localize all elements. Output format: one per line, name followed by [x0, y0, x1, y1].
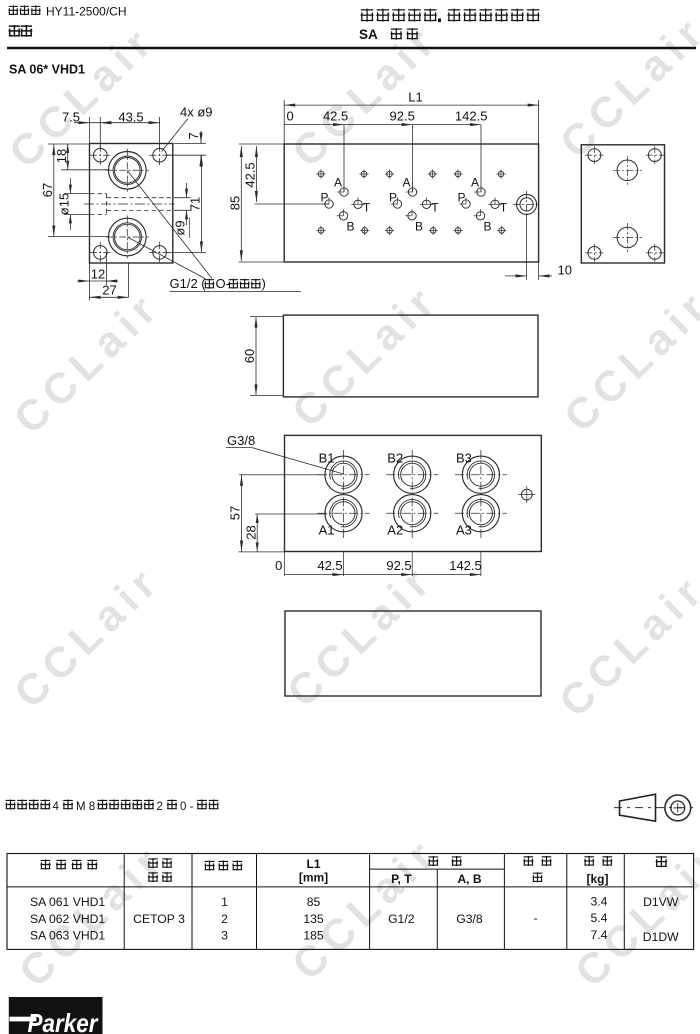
svg-text:Parker: Parker [28, 1008, 100, 1034]
svg-text:T: T [431, 200, 439, 214]
svg-text:85: 85 [307, 895, 321, 909]
svg-text:ø9: ø9 [173, 220, 188, 235]
svg-text:A2: A2 [387, 523, 403, 538]
svg-text:T: T [363, 200, 371, 214]
svg-text:5.4: 5.4 [591, 911, 608, 925]
svg-text:SA 06* VHD1: SA 06* VHD1 [9, 63, 85, 77]
svg-text:42.5: 42.5 [243, 162, 258, 187]
svg-text:SA 061 VHD1: SA 061 VHD1 [30, 895, 105, 909]
svg-text:92.5: 92.5 [386, 558, 411, 573]
svg-text:42.5: 42.5 [317, 558, 342, 573]
svg-text:0: 0 [275, 558, 282, 573]
svg-text:G1/2: G1/2 [388, 912, 415, 926]
svg-text:27: 27 [102, 283, 116, 298]
svg-text:SA: SA [359, 27, 378, 42]
svg-text:12: 12 [91, 267, 105, 282]
svg-text:A: A [334, 176, 342, 190]
svg-text:3.4: 3.4 [591, 895, 608, 909]
svg-text:135: 135 [303, 912, 324, 926]
svg-text:10: 10 [558, 263, 572, 278]
svg-text:SA 063 VHD1: SA 063 VHD1 [30, 929, 105, 943]
svg-text:[mm]: [mm] [299, 871, 328, 885]
svg-text:L1: L1 [408, 90, 422, 105]
svg-text:B: B [346, 220, 354, 234]
svg-text:28: 28 [243, 525, 258, 539]
svg-text:G1/2 (: G1/2 ( [170, 276, 207, 291]
svg-text:CETOP 3: CETOP 3 [133, 912, 185, 926]
svg-text:7.4: 7.4 [591, 928, 608, 942]
svg-text:B1: B1 [319, 450, 335, 465]
svg-text:B: B [483, 220, 491, 234]
svg-text:A3: A3 [456, 523, 472, 538]
svg-text:T: T [500, 200, 508, 214]
svg-text:0: 0 [287, 109, 294, 124]
svg-text:57: 57 [228, 506, 243, 520]
svg-text:B3: B3 [456, 450, 472, 465]
svg-text:2: 2 [221, 912, 228, 926]
svg-text:67: 67 [40, 183, 55, 197]
svg-text:ø15: ø15 [57, 193, 72, 215]
svg-text:2: 2 [157, 801, 163, 813]
svg-text:1: 1 [221, 895, 228, 909]
svg-text:P: P [389, 191, 397, 205]
svg-text:G3/8: G3/8 [456, 912, 483, 926]
svg-text:M 8: M 8 [76, 801, 95, 813]
svg-text:A: A [471, 176, 479, 190]
svg-text:): ) [262, 276, 266, 291]
svg-text:4x ø9: 4x ø9 [180, 104, 213, 119]
svg-text:B2: B2 [387, 450, 403, 465]
svg-text:43.5: 43.5 [118, 110, 143, 125]
svg-text:142.5: 142.5 [449, 558, 482, 573]
svg-text:142.5: 142.5 [455, 109, 488, 124]
svg-text:7.5: 7.5 [62, 110, 80, 125]
svg-text:P, T: P, T [391, 872, 412, 886]
svg-text:O-: O- [216, 276, 230, 291]
svg-text:0 -: 0 - [180, 801, 194, 813]
svg-text:85: 85 [228, 196, 243, 210]
svg-text:SA 062 VHD1: SA 062 VHD1 [30, 912, 105, 926]
svg-text:42.5: 42.5 [323, 109, 348, 124]
svg-text:P: P [320, 191, 328, 205]
svg-text:G3/8: G3/8 [227, 433, 255, 448]
svg-text:4: 4 [53, 801, 60, 813]
svg-text:[kg]: [kg] [587, 872, 609, 886]
svg-text:P: P [457, 191, 465, 205]
svg-text:7: 7 [186, 132, 201, 139]
svg-text:71: 71 [188, 197, 203, 211]
svg-text:3: 3 [221, 929, 228, 943]
svg-text:D1DW: D1DW [643, 930, 679, 944]
svg-text:B: B [415, 220, 423, 234]
svg-text:L1: L1 [306, 857, 320, 871]
svg-text:A1: A1 [319, 523, 335, 538]
svg-text:D1VW: D1VW [643, 895, 679, 909]
svg-text:18: 18 [54, 149, 69, 163]
svg-text:92.5: 92.5 [390, 109, 415, 124]
svg-text:A, B: A, B [458, 872, 482, 886]
svg-text:185: 185 [303, 929, 324, 943]
svg-text:60: 60 [242, 349, 257, 363]
svg-text:-: - [533, 911, 537, 925]
svg-text:HY11-2500/CH: HY11-2500/CH [46, 4, 126, 18]
svg-text:A: A [402, 176, 410, 190]
